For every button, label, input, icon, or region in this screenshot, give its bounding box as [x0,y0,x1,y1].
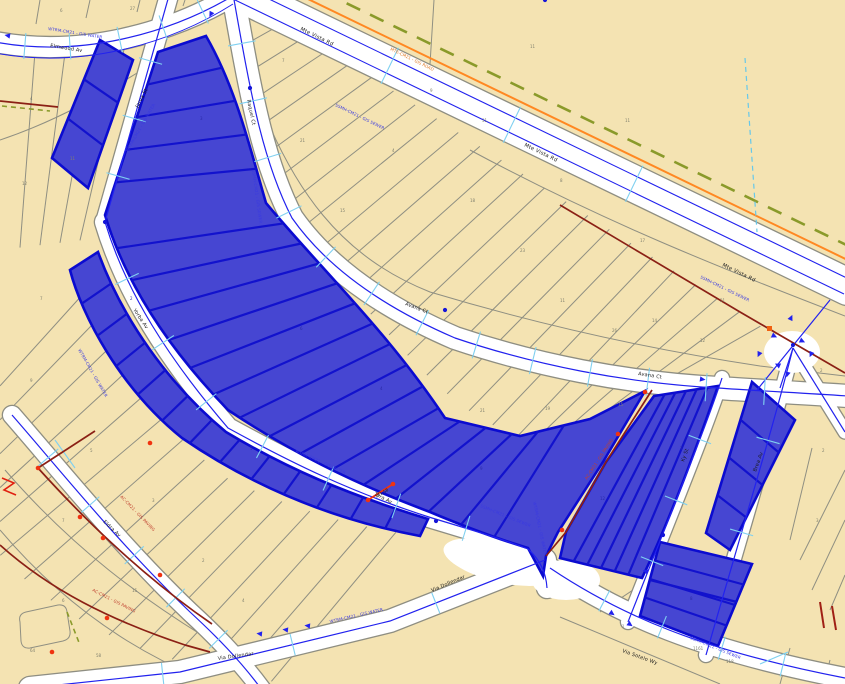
red-node-dot [366,498,371,503]
red-node-dot [78,515,83,520]
blue-node-dot [661,533,665,537]
parcel-number-label: 1161 [693,646,704,651]
parcel-number-label: 58 [96,653,102,658]
selected-parcel-number-label: 12 [600,496,606,501]
parcel-number-label: 21 [300,138,306,143]
parcel-number-label: 31 [482,118,488,123]
parcel-number-label: 15 [340,208,346,213]
parcel-number-label: 19 [545,406,551,411]
red-node-dot [148,441,153,446]
orange-node-square [767,326,772,331]
red-node-dot [36,466,41,471]
parcel-number-label: 21 [480,408,486,413]
parcel-number-label: 21 [720,298,726,303]
map-viewport[interactable]: 4111262772115491823112614123181721211915… [0,0,845,684]
parcel-number-label: 26 [612,328,618,333]
red-node-dot [105,616,110,621]
red-node-dot [616,432,621,437]
parcel-number-label: 12 [700,338,706,343]
blue-node-dot [791,343,795,347]
red-node-dot [158,573,163,578]
blue-node-dot [248,86,252,90]
parcel-number-label: 27 [130,6,136,11]
red-node-dot [101,536,106,541]
parcel-number-label: 64 [30,648,36,653]
parcel-number-label: 11 [70,156,76,161]
parcel-number-label: 15 [618,402,624,407]
blue-node-dot [443,308,447,312]
parcel-number-label: 12 [22,181,28,186]
red-node-dot [643,390,648,395]
parcel-number-label: 11 [625,118,631,123]
parcel-number-label: 11 [530,44,536,49]
parcel-number-label: 23 [520,248,526,253]
parcel-number-label: 18 [470,198,476,203]
parcel-number-label: 17 [640,238,646,243]
parcel-number-label: 14 [652,318,658,323]
parcel-number-label: 15 [132,588,138,593]
blue-node-dot [103,220,107,224]
map-canvas[interactable]: 4111262772115491823112614123181721211915… [0,0,845,684]
map-graphics-layer: 4111262772115491823112614123181721211915… [0,0,845,684]
blue-node-dot [434,519,438,523]
red-node-dot [391,482,396,487]
red-node-dot [560,528,565,533]
red-node-dot [50,650,55,655]
parcel-number-label: 118 [726,659,734,664]
parcel-number-label: 11 [560,298,566,303]
